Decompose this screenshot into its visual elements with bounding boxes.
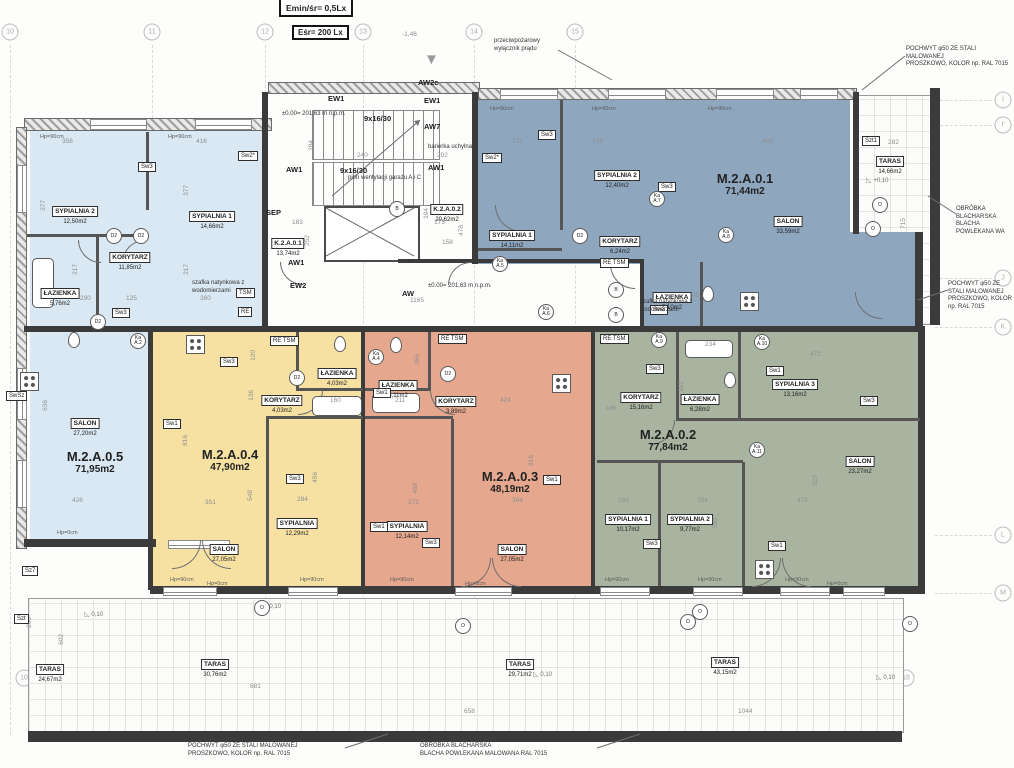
wall-segment xyxy=(742,462,745,586)
terrace-name: TARAS xyxy=(876,156,904,167)
element-tag: Sw3 xyxy=(220,357,238,367)
dimension-value: 351 xyxy=(205,499,216,506)
room-area: 23,27m2 xyxy=(846,468,875,476)
apartment-total-area: 71,44m2 xyxy=(717,186,773,198)
window-sill-height: Hp=0cm xyxy=(57,530,78,536)
annotation-text: OBRÓBKA BLACHARSKA BLACHA POWLEKANA MALO… xyxy=(420,743,595,758)
slope-mark: 0,10 xyxy=(84,610,103,618)
circled-mark: Ka A.9 xyxy=(651,332,667,348)
wall-segment xyxy=(27,234,145,237)
annotation-text: przeciwpożarowy wyłącznik prądu xyxy=(494,38,584,53)
wall-segment xyxy=(915,232,923,328)
installation-label: AW1 xyxy=(286,165,302,174)
stove-icon xyxy=(186,335,205,354)
room-label: SYPIALNIA 114,11m2 xyxy=(489,224,535,250)
room-area: 27,05m2 xyxy=(210,556,239,564)
grid-bubble-right: I xyxy=(995,92,1012,109)
room-area: 27,20m2 xyxy=(71,430,100,438)
room-area: 11,85m2 xyxy=(109,264,150,272)
dimension-value: 602 xyxy=(58,634,65,645)
room-area: 9,77m2 xyxy=(667,526,713,534)
room-name: KORYTARZ xyxy=(599,236,640,247)
grid-bubble-right: I' xyxy=(995,117,1012,134)
stair-flight xyxy=(312,162,440,206)
wall-segment xyxy=(428,332,431,390)
room-area: 5,76m2 xyxy=(41,300,80,308)
slope-mark: 0,10 xyxy=(533,670,552,678)
apartment-total-area: 48,19m2 xyxy=(482,484,538,496)
wall-segment xyxy=(28,731,902,742)
room-name: SYPIALNIA 3 xyxy=(772,379,818,390)
grid-bubble-right: K xyxy=(995,319,1012,336)
room-area: 4,03m2 xyxy=(261,407,302,415)
dimension-value: 426 xyxy=(72,497,83,504)
installation-label: EW2 xyxy=(290,281,306,290)
annotation-text: ±0.00= 201,63 m n.p.m. xyxy=(428,283,528,291)
apartment-id: M.2.A.0.3 xyxy=(482,470,538,484)
window xyxy=(843,587,885,596)
element-tag: Sw3 xyxy=(646,364,664,374)
dimension-value: 271 xyxy=(512,138,523,145)
dimension-value: 254 xyxy=(697,497,708,504)
terrace-name: TARAS xyxy=(711,657,739,668)
annotation-text: barierka uchylna xyxy=(428,144,498,152)
room-label: SALON27,05m2 xyxy=(210,538,239,564)
terrace-name: TARAS xyxy=(506,659,534,670)
element-tag: RE TSM xyxy=(270,336,299,346)
circled-mark: B xyxy=(389,201,405,217)
room-name: SYPIALNIA xyxy=(387,521,428,532)
dimension-value: 360 xyxy=(200,295,211,302)
legend-emin-box: Emin/śr= 0,5Lx xyxy=(279,0,353,17)
room-label: ŁAZIENKA5,76m2 xyxy=(41,282,80,308)
annotation-text: OBRÓBKA BLACHARSKA BLACHA POWLEKANA WA xyxy=(956,206,1014,236)
room-area: 33,59m2 xyxy=(774,228,803,236)
room-name: SALON xyxy=(210,544,239,555)
wall-segment xyxy=(597,460,743,463)
apartment-id: M.2.A.0.1 xyxy=(717,172,773,186)
room-name: KORYTARZ xyxy=(261,395,302,406)
room-name: ŁAZIENKA xyxy=(681,394,720,405)
dimension-value: 379 xyxy=(592,138,603,145)
window-sill-height: Hp=90cm xyxy=(708,106,732,112)
dimension-value: 256 xyxy=(414,354,421,365)
dimension-value: 1165 xyxy=(410,297,424,304)
stove-icon xyxy=(552,374,571,393)
room-label: SYPIALNIA 212,50m2 xyxy=(52,200,98,226)
circled-mark: Ka A.6 xyxy=(538,304,554,320)
dimension-value: 271 xyxy=(408,499,419,506)
annotation-text: POCHWYT φ50 ZE STALI MALOWANEJ PROSZKOWO… xyxy=(948,281,1012,311)
room-label: SALON27,20m2 xyxy=(71,412,100,438)
element-tag: Szt xyxy=(14,614,29,624)
element-tag: RE xyxy=(238,307,252,317)
dimension-value: 483 xyxy=(762,138,773,145)
dimension-value: 125 xyxy=(126,295,137,302)
grid-bubble-top: 11 xyxy=(144,24,161,41)
dimension-value: 715 xyxy=(900,218,907,229)
dimension-value: 252 xyxy=(304,235,311,246)
staircore-room-label: K.2.A.0.220,62m2 xyxy=(430,198,463,224)
wall-segment xyxy=(738,332,741,420)
element-tag: Sw3 xyxy=(538,130,556,140)
dimension-value: 217 xyxy=(183,264,190,275)
window-sill-height: Hp=90cm xyxy=(300,577,324,583)
wall-segment xyxy=(266,416,363,419)
room-label: SALON27,05m2 xyxy=(498,538,527,564)
element-tag: Sw3 xyxy=(286,474,304,484)
circled-mark: O xyxy=(865,221,881,237)
wall-segment xyxy=(658,462,661,586)
room-label: SYPIALNIA 313,16m2 xyxy=(772,373,818,399)
dimension-value: 146 xyxy=(605,405,616,412)
room-area: 14,11m2 xyxy=(489,242,535,250)
window-sill-height: Hp=90cm xyxy=(490,106,514,112)
dimension-value: 284 xyxy=(297,496,308,503)
room-name: SYPIALNIA 1 xyxy=(189,211,235,222)
dimension-value: 160 xyxy=(330,397,341,404)
element-tag: RE TSM xyxy=(600,258,629,268)
toilet-icon xyxy=(334,336,346,352)
grid-bubble-top: 13 xyxy=(355,24,372,41)
dimension-value: 478 xyxy=(458,225,465,236)
element-tag: Sw3 xyxy=(138,162,156,172)
apartment-id: M.2.A.0.4 xyxy=(202,448,258,462)
annotation-text: ±0.00= 201,63 m n.p.m. xyxy=(282,111,382,119)
room-name: ŁAZIENKA xyxy=(318,368,357,379)
circled-mark: D2 xyxy=(90,314,106,330)
terrace-area-value: 24,67m2 xyxy=(36,676,64,684)
installation-label: AW xyxy=(402,289,414,298)
room-label: SYPIALNIA12,29m2 xyxy=(277,512,318,538)
annotation-text: szafka natynkowa z wodomierzami xyxy=(192,280,274,295)
elevator-shaft xyxy=(324,206,420,262)
annotation-text: POCHWYT φ50 ZE STALI MALOWANEJ PROSZKOWO… xyxy=(906,46,1014,69)
element-tag: Sw1 xyxy=(373,388,391,398)
room-name: ŁAZIENKA xyxy=(41,288,80,299)
circled-mark: B xyxy=(608,307,624,323)
room-label: SYPIALNIA 29,77m2 xyxy=(667,508,713,534)
terrace-label: TARAS24,67m2 xyxy=(36,658,64,684)
dimension-value: 472 xyxy=(797,497,808,504)
dimension-value: 284 xyxy=(308,140,315,151)
terrace-label: TARAS29,71m2 xyxy=(506,653,534,679)
dimension-value: 816 xyxy=(528,455,535,466)
circled-mark: O xyxy=(902,616,918,632)
wall-segment xyxy=(266,419,269,586)
wall-segment xyxy=(591,332,595,588)
circled-mark: O xyxy=(254,600,270,616)
terrace-name: TARAS xyxy=(36,664,64,675)
circled-mark: Ka A.7 xyxy=(649,191,665,207)
room-name: SYPIALNIA 2 xyxy=(667,514,713,525)
wall-segment xyxy=(472,92,478,264)
circled-mark: O xyxy=(872,197,888,213)
window xyxy=(716,89,774,100)
window-sill-height: Hp=90cm xyxy=(390,577,414,583)
room-area: 27,05m2 xyxy=(498,556,527,564)
installation-label: AW1 xyxy=(288,258,304,267)
wall-segment xyxy=(676,332,679,420)
installation-label: 9x16/30 xyxy=(340,166,367,175)
room-name: SYPIALNIA 1 xyxy=(605,514,651,525)
wall-segment xyxy=(853,92,859,234)
window xyxy=(455,587,512,596)
wall-segment xyxy=(361,332,365,588)
circled-mark: Ka A.4 xyxy=(368,349,384,365)
dimension-value: 658 xyxy=(464,708,475,715)
room-label: KORYTARZ6,24m2 xyxy=(599,230,640,256)
window xyxy=(17,165,27,213)
dimension-value: 390 xyxy=(712,518,719,529)
wall-segment xyxy=(268,82,480,94)
toilet-icon xyxy=(390,337,402,353)
apartment-id-label: M.2.A.0.171,44m2 xyxy=(717,172,773,198)
toilet-icon xyxy=(68,332,80,348)
dimension-value: 636 xyxy=(42,400,49,411)
dimension-value: 681 xyxy=(250,683,261,690)
circled-mark: Ka A.2 xyxy=(130,333,146,349)
window xyxy=(780,587,830,596)
grid-bubble-top: 14 xyxy=(466,24,483,41)
window-sill-height: Hp=90cm xyxy=(170,577,194,583)
element-tag: Sw1 xyxy=(370,522,388,532)
circled-mark: D2 xyxy=(440,366,456,382)
room-name: KORYTARZ xyxy=(435,396,476,407)
dimension-value: 424 xyxy=(500,397,511,404)
element-tag: Sw3 xyxy=(658,182,676,192)
wall-segment xyxy=(930,88,940,325)
circled-mark: O xyxy=(692,604,708,620)
wall-segment xyxy=(24,326,925,332)
room-area: 12,29m2 xyxy=(277,530,318,538)
room-label: KORYTARZ15,16m2 xyxy=(620,386,661,412)
apartment-id: M.2.A.0.2 xyxy=(640,428,696,442)
window xyxy=(693,587,743,596)
dimension-value: 416 xyxy=(196,138,207,145)
apartment-id-label: M.2.A.0.571,95m2 xyxy=(67,450,123,476)
dimension-value: 183 xyxy=(292,219,303,226)
wall-segment xyxy=(451,419,454,586)
circled-mark: D2 xyxy=(572,228,588,244)
room-label: KORYTARZ4,03m2 xyxy=(261,389,302,415)
window xyxy=(195,119,252,130)
room-area: 13,16m2 xyxy=(772,391,818,399)
room-area: 12,40m2 xyxy=(594,182,640,190)
element-tag: Sz7 xyxy=(22,566,38,576)
installation-label: SEP xyxy=(266,208,281,217)
apartment-area xyxy=(363,332,593,588)
room-area: 3,89m2 xyxy=(435,408,476,416)
window xyxy=(17,460,27,508)
element-tag: Sw1 xyxy=(768,541,786,551)
window xyxy=(288,587,338,596)
room-label: KORYTARZ3,89m2 xyxy=(435,390,476,416)
window-sill-height: Hp=90cm xyxy=(698,577,722,583)
grid-bubble-top: 10 xyxy=(2,24,19,41)
dimension-value: 468 xyxy=(412,483,419,494)
terrace-name: TARAS xyxy=(201,659,229,670)
fire-triangle-icon: ▼ xyxy=(424,52,439,67)
window-sill-height: Hp=90cm xyxy=(605,577,629,583)
legend-esr-box: Eśr= 200 Lx xyxy=(292,25,349,40)
dimension-value: 202 xyxy=(437,152,448,159)
element-tag: RE TSM xyxy=(600,334,629,344)
circled-mark: O xyxy=(455,618,471,634)
slope-mark: 0,10 xyxy=(876,673,895,681)
window-sill-height: Hp=0cm xyxy=(827,581,848,587)
circled-mark: Ka A.5 xyxy=(492,256,508,272)
terrace-area-value: 29,71m2 xyxy=(506,671,534,679)
room-name: SYPIALNIA xyxy=(277,518,318,529)
room-name: SALON xyxy=(774,216,803,227)
installation-label: AW7 xyxy=(424,122,440,131)
dimension-value: 548 xyxy=(247,490,254,501)
staircore-room-label: K.2.A.0.113,74m2 xyxy=(271,232,304,258)
wall-segment xyxy=(918,332,925,590)
window xyxy=(600,587,650,596)
room-label: ŁAZIENKA6,28m2 xyxy=(681,388,720,414)
stove-icon xyxy=(20,372,39,391)
window xyxy=(163,587,217,596)
dimension-value: 377 xyxy=(183,185,190,196)
window-sill-height: Hp=90cm xyxy=(592,106,616,112)
room-name: K.2.A.0.1 xyxy=(271,238,304,249)
dimension-value: 472 xyxy=(810,351,821,358)
annotation-text: pion wentylacji garażu A i C xyxy=(348,175,458,183)
window-sill-height: Hp=0cm xyxy=(465,581,486,587)
room-label: ŁAZIENKA4,03m2 xyxy=(318,362,357,388)
wall-segment xyxy=(676,418,740,421)
toilet-icon xyxy=(724,372,736,388)
room-area: 10,17m2 xyxy=(605,526,651,534)
dimension-value: 364 xyxy=(512,497,523,504)
dimension-value: 816 xyxy=(182,435,189,446)
apartment-total-area: 77,84m2 xyxy=(640,442,696,454)
terrace-area-value: 43,15m2 xyxy=(711,669,739,677)
window xyxy=(800,89,838,100)
room-area: 6,28m2 xyxy=(681,406,720,414)
element-tag: Sw3 xyxy=(643,539,661,549)
terrace-label: TARAS30,76m2 xyxy=(201,653,229,679)
room-name: SYPIALNIA 2 xyxy=(52,206,98,217)
apartment-total-area: 71,95m2 xyxy=(67,464,123,476)
grid-bubble-right: L xyxy=(995,527,1012,544)
wall-segment xyxy=(24,539,156,547)
installation-label: AW1 xyxy=(428,163,444,172)
apartment-id-label: M.2.A.0.447,90m2 xyxy=(202,448,258,474)
element-tag: RE TSM xyxy=(438,334,467,344)
element-tag: Sw1 xyxy=(543,475,561,485)
window xyxy=(608,89,666,100)
room-area: 4,03m2 xyxy=(318,380,357,388)
circled-mark: Ka A.11 xyxy=(749,442,765,458)
element-tag: Sw3 xyxy=(422,538,440,548)
room-area: 15,16m2 xyxy=(620,404,661,412)
terrace-area-value: 30,76m2 xyxy=(201,671,229,679)
room-name: SALON xyxy=(498,544,527,555)
grid-bubble-top: 12 xyxy=(257,24,274,41)
room-name: KORYTARZ xyxy=(620,392,661,403)
apartment-id: M.2.A.0.5 xyxy=(67,450,123,464)
room-name: SYPIALNIA 2 xyxy=(594,170,640,181)
dimension-value: 264 xyxy=(618,497,629,504)
grid-bubble-right: M xyxy=(995,585,1012,602)
element-tag: SwSz xyxy=(6,391,27,401)
room-area: 14,66m2 xyxy=(189,223,235,231)
dimension-value: 1044 xyxy=(738,708,752,715)
window xyxy=(90,119,147,130)
apartment-id-label: M.2.A.0.277,84m2 xyxy=(640,428,696,454)
dimension-value: 234 xyxy=(705,341,716,348)
annotation-text: szafka natynkowa z wodomierzami xyxy=(640,299,722,314)
circled-mark: D2 xyxy=(106,228,122,244)
circled-mark: D2 xyxy=(289,370,305,386)
dimension-value: -1,46 xyxy=(402,31,417,38)
installation-label: AW2c xyxy=(418,78,438,87)
installation-label: EW1 xyxy=(424,96,440,105)
room-name: K.2.A.0.2 xyxy=(430,204,463,215)
wall-segment xyxy=(640,262,644,328)
dimension-value: 522 xyxy=(812,475,819,486)
circled-mark: B xyxy=(608,282,624,298)
room-label: SYPIALNIA 212,40m2 xyxy=(594,164,640,190)
installation-label: EW1 xyxy=(328,94,344,103)
room-label: SYPIALNIA 110,17m2 xyxy=(605,508,651,534)
element-tag: Sw2* xyxy=(482,153,502,163)
wall-segment xyxy=(740,418,920,421)
apartment-total-area: 47,90m2 xyxy=(202,462,258,474)
dimension-value: 120 xyxy=(250,350,257,361)
room-area: 13,74m2 xyxy=(271,250,304,258)
apartment-id-label: M.2.A.0.348,19m2 xyxy=(482,470,538,496)
window-sill-height: Hp=90cm xyxy=(785,577,809,583)
dimension-value: 240 xyxy=(357,152,368,159)
terrace-label: TARAS14,66m2 xyxy=(876,150,904,176)
room-name: SALON xyxy=(846,456,875,467)
room-label: SALON33,59m2 xyxy=(774,210,803,236)
element-tag: Szt1 xyxy=(862,136,880,146)
room-name: KORYTARZ xyxy=(109,252,150,263)
dimension-value: 290 xyxy=(80,295,91,302)
circled-mark: D2 xyxy=(133,228,149,244)
annotation-text: POCHWYT φ50 ZE STALI MALOWANEJ PROSZKOWO… xyxy=(188,743,343,758)
window-sill-height: Hp=0cm xyxy=(207,581,228,587)
dimension-value: 194 xyxy=(423,208,430,219)
room-area: 12,50m2 xyxy=(52,218,98,226)
dimension-value: 136 xyxy=(248,390,255,401)
window-sill-height: Hp=90cm xyxy=(40,134,64,140)
element-tag: Sw2* xyxy=(238,151,258,161)
floor-plan-sheet: 1011121314151011121415161718II'JKLM M.2.… xyxy=(0,0,1014,768)
dimension-value: 282 xyxy=(888,139,899,146)
dimension-value: 158 xyxy=(442,239,453,246)
room-area: 20,62m2 xyxy=(430,216,463,224)
element-tag: Sw3 xyxy=(860,396,878,406)
dimension-value: 217 xyxy=(72,264,79,275)
dimension-value: 377 xyxy=(40,200,47,211)
terrace-label: TARAS43,15m2 xyxy=(711,651,739,677)
window xyxy=(500,89,558,100)
stove-icon xyxy=(740,292,759,311)
terrace-area-value: 14,66m2 xyxy=(876,168,904,176)
wall-segment xyxy=(560,100,563,230)
circled-mark: Ka A.8 xyxy=(718,227,734,243)
slope-mark: +0,10 xyxy=(866,176,889,184)
wall-segment xyxy=(365,416,453,419)
element-tag: Sw1 xyxy=(766,366,784,376)
element-tag: Sw1 xyxy=(163,419,181,429)
